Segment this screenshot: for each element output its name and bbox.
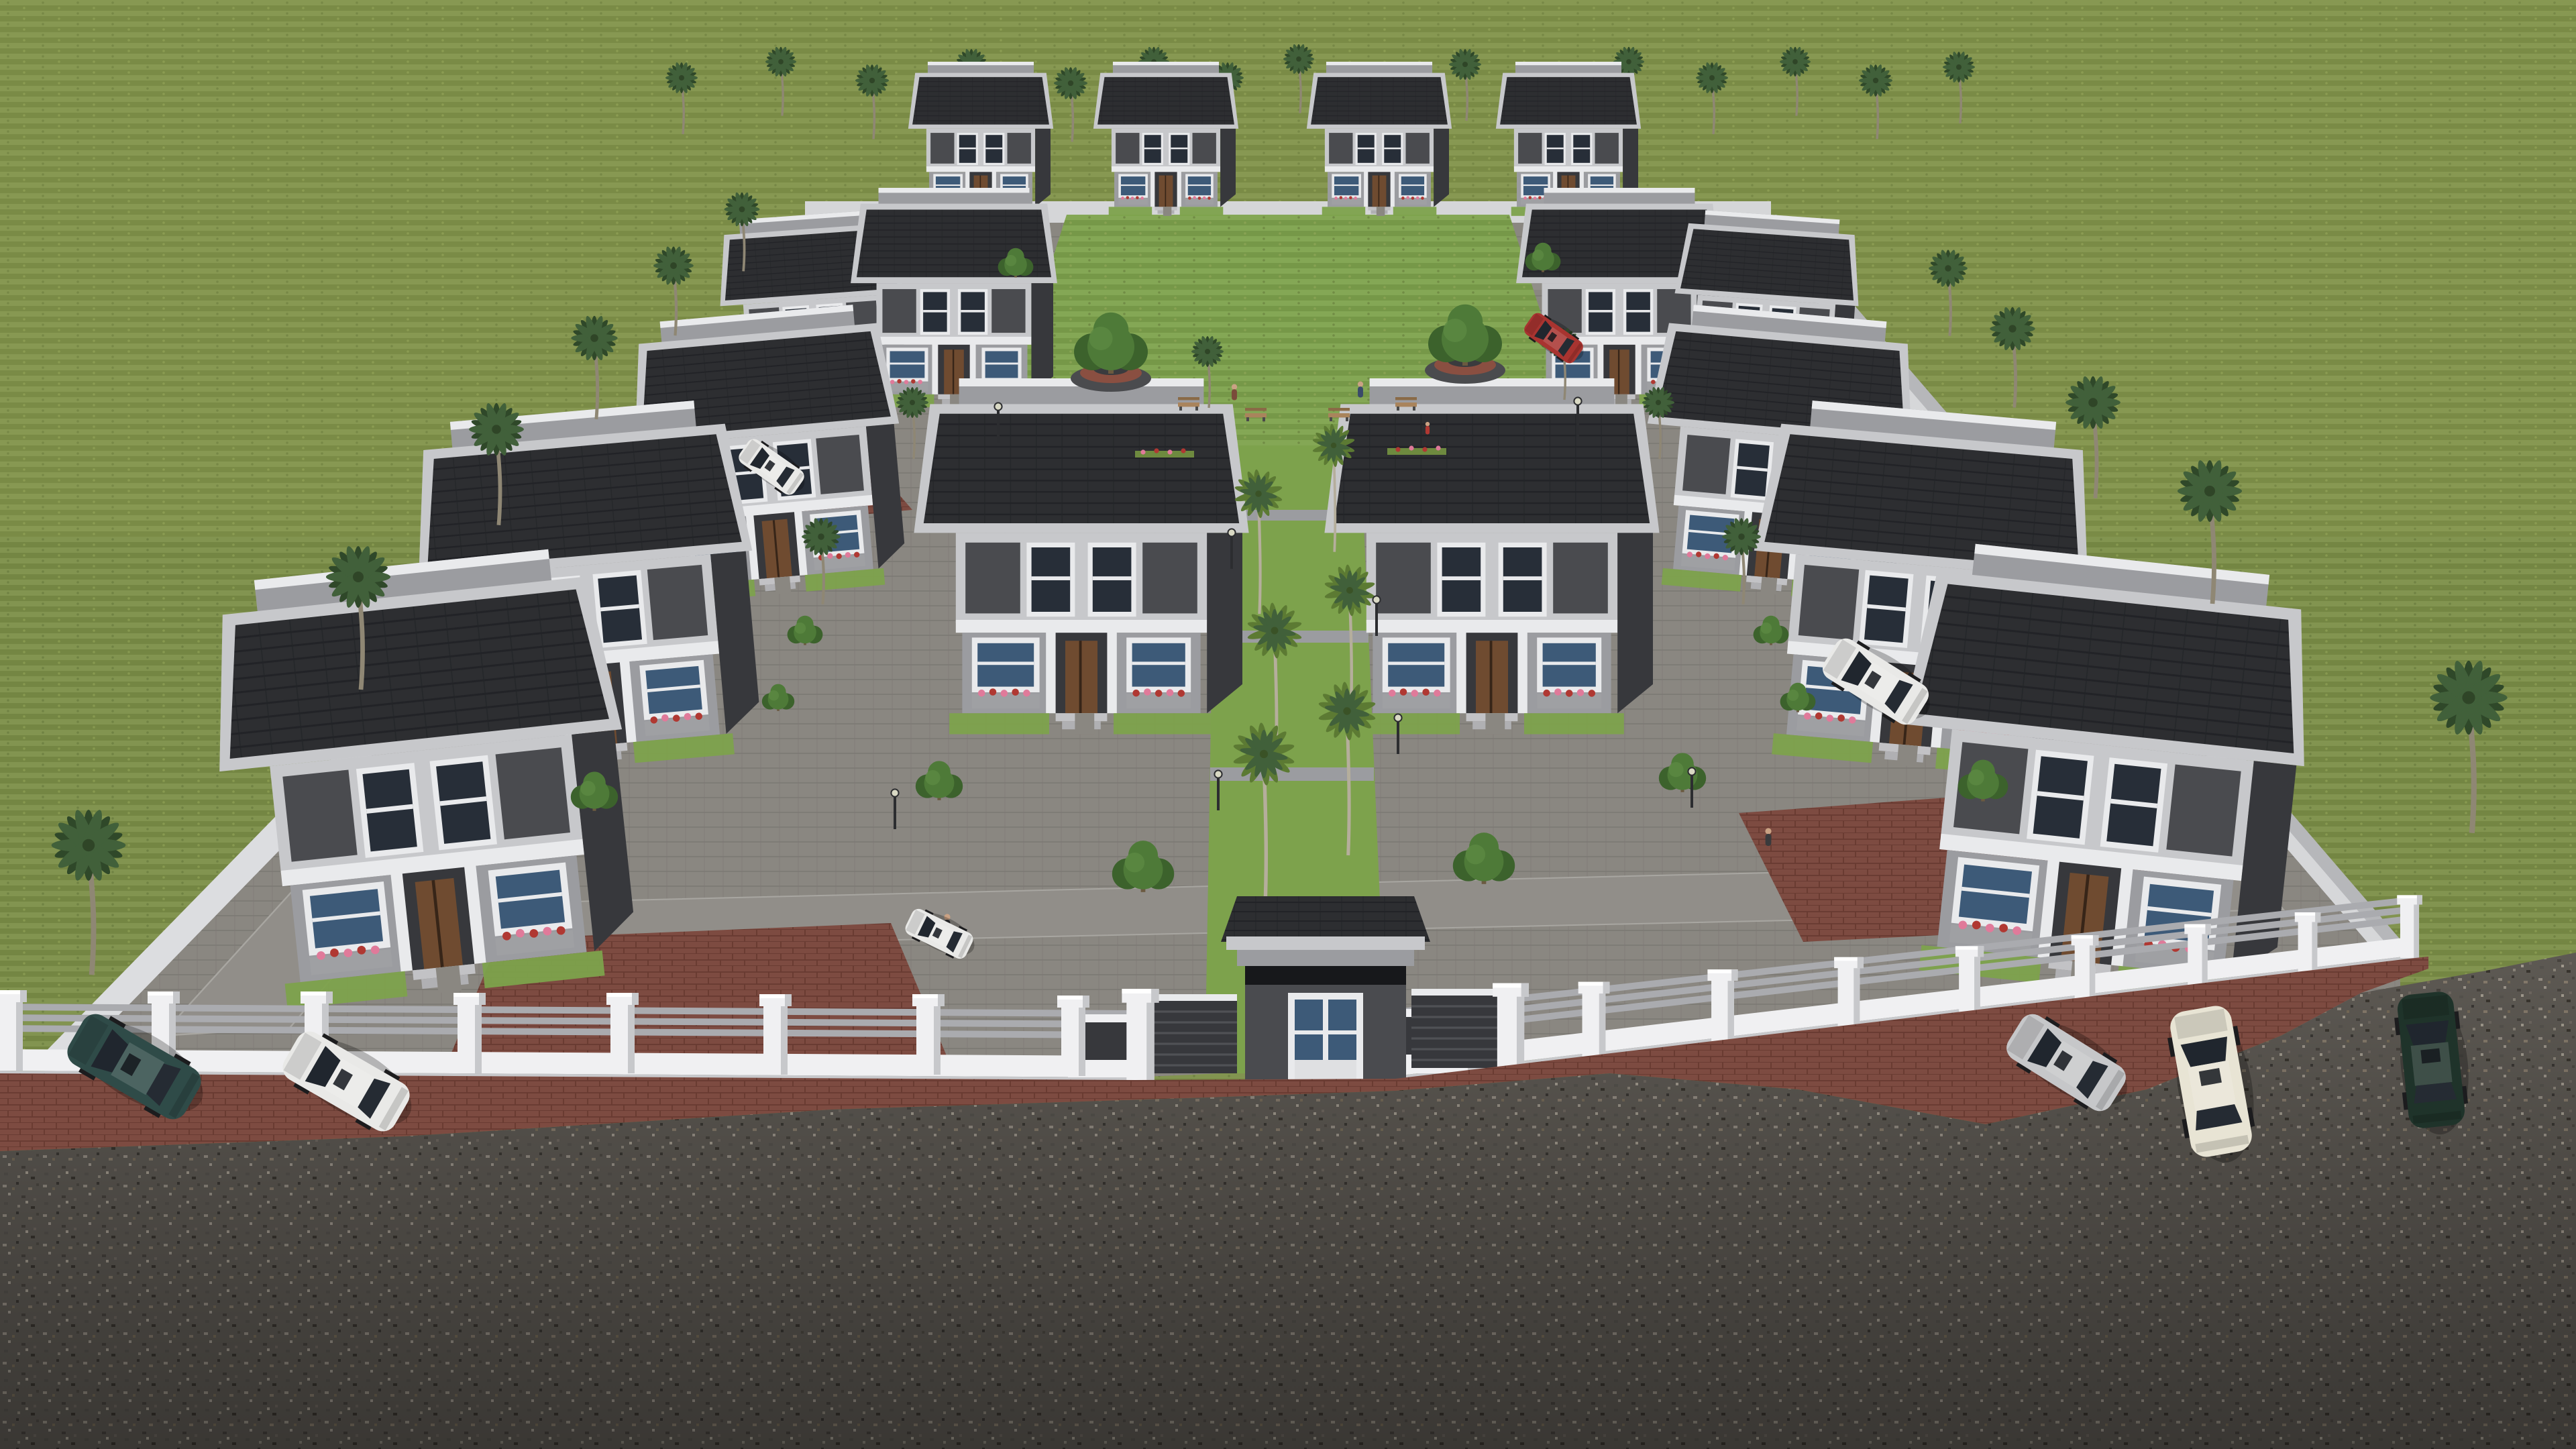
villa-center-right <box>1324 378 1659 734</box>
gatehouse-door-rail <box>1295 1030 1356 1034</box>
fence-pillar <box>1834 957 1864 1030</box>
person-seated <box>1358 382 1363 398</box>
gatehouse-eave-shadow <box>1245 966 1406 985</box>
gate-post <box>1122 989 1159 1081</box>
villa-center-left <box>914 378 1248 734</box>
villa-back-3 <box>1307 62 1452 216</box>
flowers <box>1181 448 1185 453</box>
gate-panel-left <box>1148 994 1237 1073</box>
flowers <box>1409 445 1413 450</box>
gatehouse-band <box>1237 950 1414 966</box>
fence-pillar <box>1578 982 1610 1060</box>
fence-pillar <box>2397 895 2422 958</box>
person-walking <box>1765 828 1771 846</box>
flowers <box>1167 449 1172 454</box>
estate-render <box>0 0 2576 1449</box>
villa-back-2 <box>1093 62 1238 216</box>
fence-pillar <box>1955 946 1984 1017</box>
fence-pillar <box>759 994 792 1075</box>
fence-pillar <box>0 990 27 1071</box>
flowers <box>1436 445 1440 450</box>
fence-pillar <box>2295 912 2320 977</box>
fence-pillar <box>912 994 945 1075</box>
fence-pillar <box>453 993 486 1073</box>
flowers <box>1140 449 1145 454</box>
fence-pillar <box>1057 996 1089 1076</box>
person-seated <box>1232 384 1237 400</box>
flowers <box>1154 448 1159 453</box>
fence-pillar <box>606 993 639 1073</box>
gatehouse <box>1221 896 1430 1089</box>
gatehouse-fascia <box>1226 936 1425 950</box>
gate-post <box>1493 983 1529 1073</box>
flowers <box>1395 447 1400 451</box>
fence-pillar <box>2184 924 2210 990</box>
gate-panel-right <box>1411 989 1500 1068</box>
person-child <box>1426 422 1430 435</box>
gatehouse-roof <box>1221 896 1430 942</box>
flowers <box>1422 447 1427 451</box>
fence-pillar <box>2072 935 2099 1004</box>
fence-pillar <box>1707 969 1737 1045</box>
